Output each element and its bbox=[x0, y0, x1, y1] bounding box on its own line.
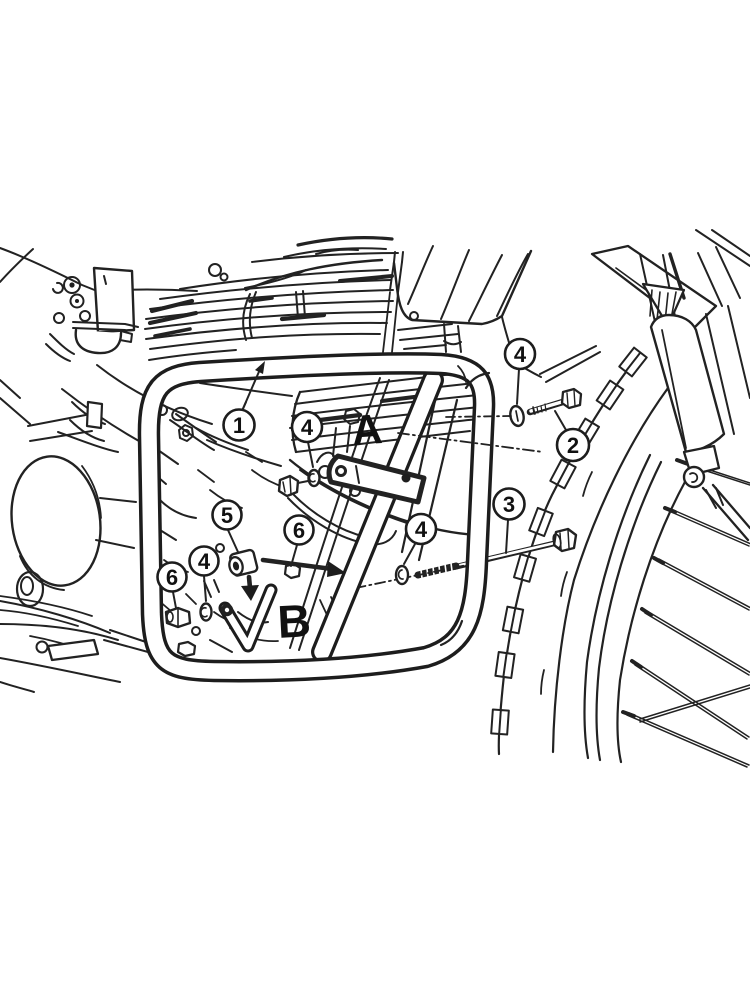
svg-text:4: 4 bbox=[198, 549, 211, 574]
svg-text:4: 4 bbox=[514, 342, 527, 367]
svg-text:6: 6 bbox=[166, 565, 178, 590]
svg-text:A: A bbox=[350, 405, 384, 454]
svg-text:5: 5 bbox=[221, 503, 233, 528]
svg-text:2: 2 bbox=[567, 433, 579, 458]
svg-text:3: 3 bbox=[503, 492, 515, 517]
svg-text:B: B bbox=[276, 594, 312, 648]
svg-text:4: 4 bbox=[301, 415, 314, 440]
svg-text:6: 6 bbox=[293, 518, 305, 543]
svg-text:4: 4 bbox=[415, 517, 428, 542]
svg-text:1: 1 bbox=[233, 413, 245, 438]
